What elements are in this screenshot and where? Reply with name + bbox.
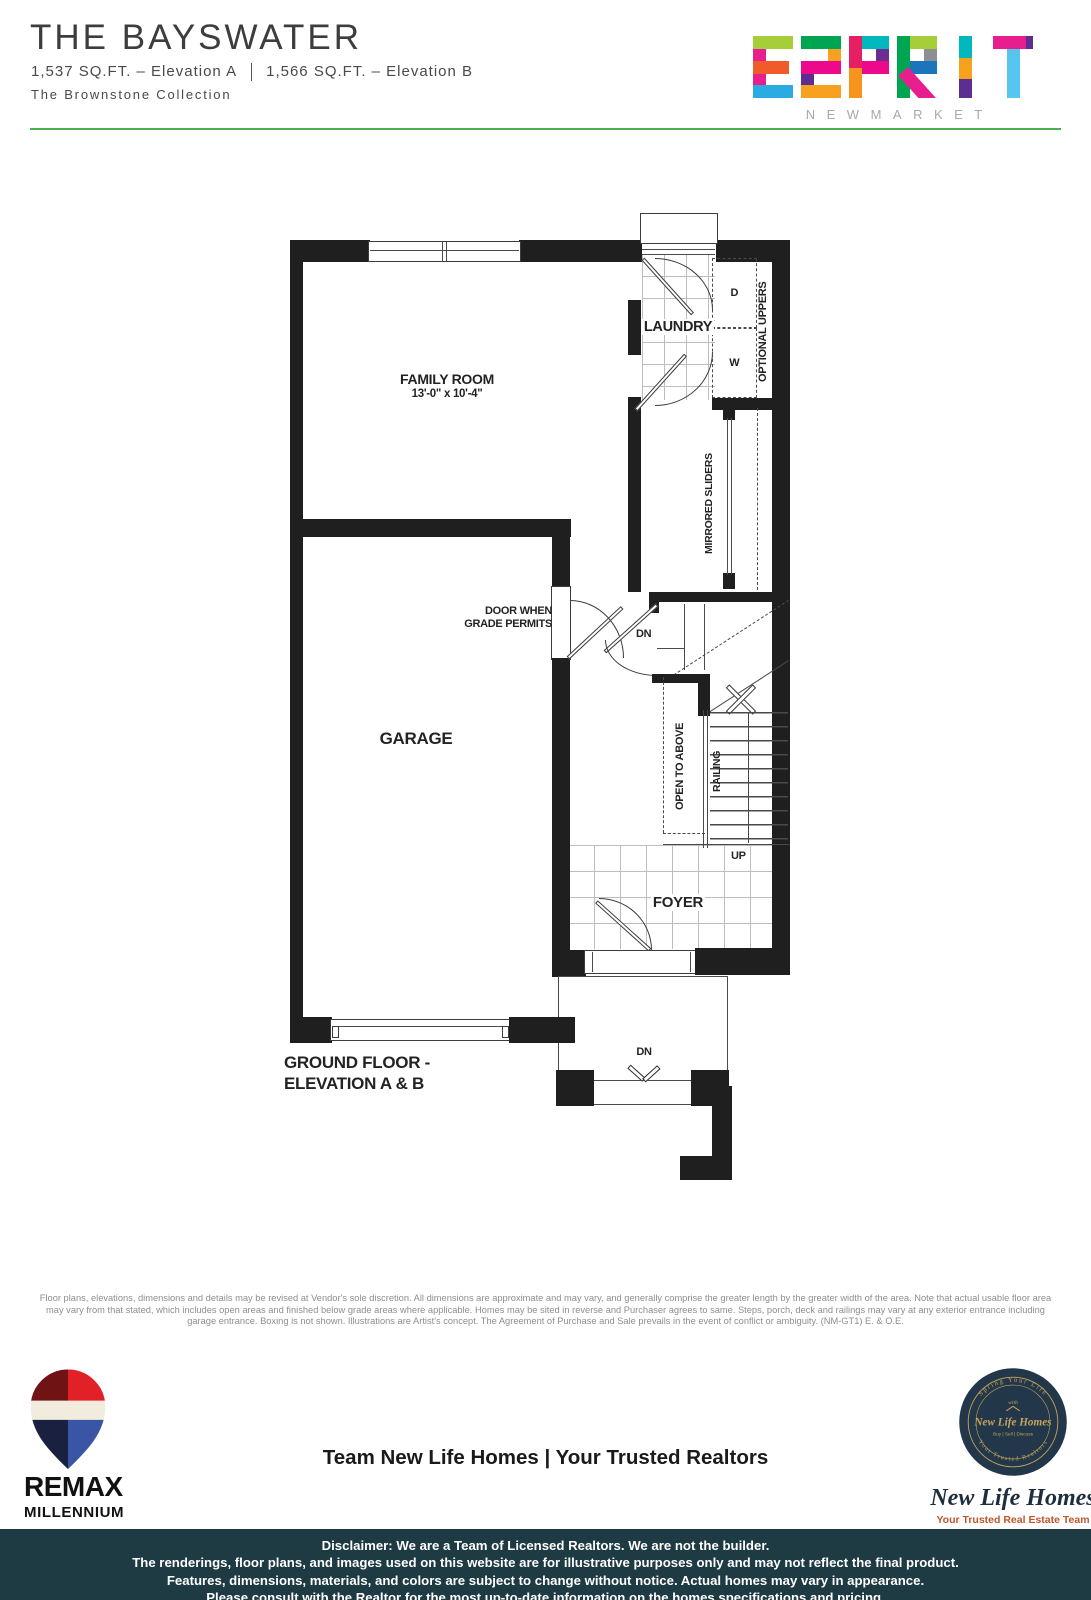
garage-door-notch-right	[502, 1026, 509, 1038]
footer-disclaimer-line-1: Disclaimer: We are a Team of Licensed Re…	[0, 1537, 1091, 1554]
sqft-elevation-a: 1,537 SQ.FT. – Elevation A	[31, 63, 237, 80]
garage-door-jamb	[551, 586, 571, 660]
open-to-above-dash-h	[663, 833, 705, 834]
legal-line-2: may vary from that stated, which include…	[0, 1305, 1091, 1317]
laundry-label: LAUNDRY	[642, 319, 714, 335]
esprit-logo: NEWMARKET	[753, 36, 1035, 122]
spec-divider	[251, 63, 252, 81]
sqft-elevation-b: 1,566 SQ.FT. – Elevation B	[266, 63, 473, 80]
family-room-label: FAMILY ROOM	[400, 371, 494, 387]
window-mullion-b	[446, 242, 447, 261]
dryer-label: D	[731, 287, 739, 299]
step-wall-foot	[680, 1156, 732, 1180]
letter-i	[945, 36, 985, 98]
wall-laundry-left-stub-top	[628, 244, 641, 258]
window-inner-line	[370, 250, 519, 251]
wall-garage-bottom-right	[509, 1017, 575, 1043]
basement-door-arc	[605, 640, 657, 676]
letter-p	[849, 36, 889, 98]
new-life-homes-tagline: Your Trusted Real Estate Team	[918, 1514, 1091, 1526]
family-room-window	[368, 241, 521, 262]
slider-stub-bottom	[723, 573, 735, 589]
porch-step-line-2	[594, 1104, 691, 1105]
railing-line-a	[703, 710, 704, 848]
new-life-homes-script: New Life Homes	[918, 1485, 1091, 1512]
svg-text:with: with	[1008, 1400, 1018, 1406]
garage-overhead-door	[330, 1019, 511, 1041]
porch-pillar-left	[556, 1070, 594, 1106]
esprit-city: NEWMARKET	[753, 107, 1035, 122]
new-life-homes-logo: Spring Your Life Your Trusted Realtors w…	[918, 1366, 1091, 1526]
railing-line-b	[707, 710, 708, 848]
letter-e	[753, 36, 793, 98]
washer-label: W	[729, 357, 739, 369]
stair-bottom-edge	[663, 844, 789, 845]
remax-sub-text: MILLENNIUM	[24, 1504, 164, 1521]
legal-line-1: Floor plans, elevations, dimensions and …	[0, 1293, 1091, 1305]
open-to-above-dash-v	[663, 677, 664, 833]
optional-uppers-label: OPTIONAL UPPERS	[757, 280, 769, 382]
slider-stub-top	[723, 406, 735, 420]
wall-stair-top	[649, 592, 790, 602]
plan-caption-line2: ELEVATION A & B	[284, 1073, 430, 1094]
sill-notch-left	[592, 952, 593, 972]
svg-text:New Life Homes: New Life Homes	[973, 1416, 1052, 1428]
closet-dashed-line	[757, 408, 758, 590]
esprit-letters	[753, 36, 1035, 98]
railing-label: RAILING	[711, 744, 723, 792]
legal-disclaimer: Floor plans, elevations, dimensions and …	[0, 1293, 1091, 1328]
remax-logo: REMAX MILLENNIUM	[24, 1366, 164, 1521]
garage-door-notch-left	[332, 1026, 339, 1038]
front-door-sill	[584, 950, 698, 974]
family-room-dims: 13'-0" x 10'-4"	[412, 388, 483, 400]
page-title: THE BAYSWATER	[30, 18, 362, 58]
laundry-shelf-line-1	[642, 249, 715, 250]
open-to-above-label: OPEN TO ABOVE	[674, 726, 686, 810]
basement-tread-2	[704, 604, 705, 670]
foyer-label: FOYER	[651, 894, 705, 911]
wall-laundry-left-lower	[628, 397, 641, 592]
laundry-bumpout	[640, 213, 718, 244]
porch-top-line	[558, 976, 728, 977]
plan-caption: GROUND FLOOR - ELEVATION A & B	[284, 1052, 430, 1094]
porch-right-line	[727, 977, 728, 1072]
window-mullion-a	[442, 242, 443, 261]
door-when-line2: GRADE PERMITS	[422, 618, 552, 631]
flyer-page: THE BAYSWATER 1,537 SQ.FT. – Elevation A…	[0, 0, 1091, 1600]
footer-disclaimer-band: Disclaimer: We are a Team of Licensed Re…	[0, 1529, 1091, 1600]
dn-porch-label: DN	[636, 1046, 651, 1058]
dn-stairs-label: DN	[636, 628, 651, 640]
footer-disclaimer-line-2: The renderings, floor plans, and images …	[0, 1554, 1091, 1571]
up-stair-stringer	[748, 712, 749, 843]
wall-front-right	[695, 948, 790, 975]
dryer-box: D	[712, 258, 757, 328]
wall-top-mid	[519, 240, 642, 262]
laundry-shelf-line-2	[642, 254, 715, 255]
collection-name: The Brownstone Collection	[31, 87, 231, 102]
footer-disclaimer-line-4: Please consult with the Realtor for the …	[0, 1589, 1091, 1600]
svg-text:Buy | Sell | Discuss: Buy | Sell | Discuss	[993, 1431, 1034, 1436]
wall-garage-right-lower	[552, 658, 570, 952]
door-when-grade-permits-label: DOOR WHEN GRADE PERMITS	[422, 605, 552, 631]
letter-s	[801, 36, 841, 98]
legal-line-3: garage entrance. Boxing is not shown. Il…	[0, 1316, 1091, 1328]
wall-garage-right-upper	[552, 537, 570, 588]
basement-tread-1	[684, 604, 685, 670]
wall-stair-corner-h	[652, 674, 704, 683]
plan-caption-line1: GROUND FLOOR -	[284, 1052, 430, 1073]
wall-garage-bottom-left	[290, 1017, 332, 1043]
step-wall-vertical	[712, 1086, 732, 1158]
sill-notch-right	[690, 952, 691, 972]
door-when-line1: DOOR WHEN	[422, 605, 552, 618]
remax-brand-text: REMAX	[24, 1471, 164, 1503]
new-life-homes-badge: Spring Your Life Your Trusted Realtors w…	[957, 1366, 1069, 1478]
washer-box: W	[712, 328, 757, 398]
footer-disclaimer-line-3: Features, dimensions, materials, and col…	[0, 1572, 1091, 1589]
wall-garage-divider	[290, 519, 571, 537]
wall-left	[290, 240, 303, 1043]
garage-label: GARAGE	[380, 729, 453, 749]
sqft-specs: 1,537 SQ.FT. – Elevation A1,566 SQ.FT. –…	[31, 63, 473, 81]
wall-laundry-left-mid	[628, 300, 641, 355]
up-label: UP	[731, 850, 746, 862]
basement-tread-edge	[657, 648, 684, 649]
slider-line-b	[731, 418, 732, 575]
green-rule	[30, 128, 1061, 130]
slider-line-a	[727, 418, 728, 575]
garage-door-inner-line	[333, 1026, 508, 1027]
wall-front-left	[552, 950, 586, 977]
letter-r	[897, 36, 937, 98]
mirrored-sliders-label: MIRRORED SLIDERS	[703, 448, 715, 554]
letter-t	[993, 36, 1033, 98]
